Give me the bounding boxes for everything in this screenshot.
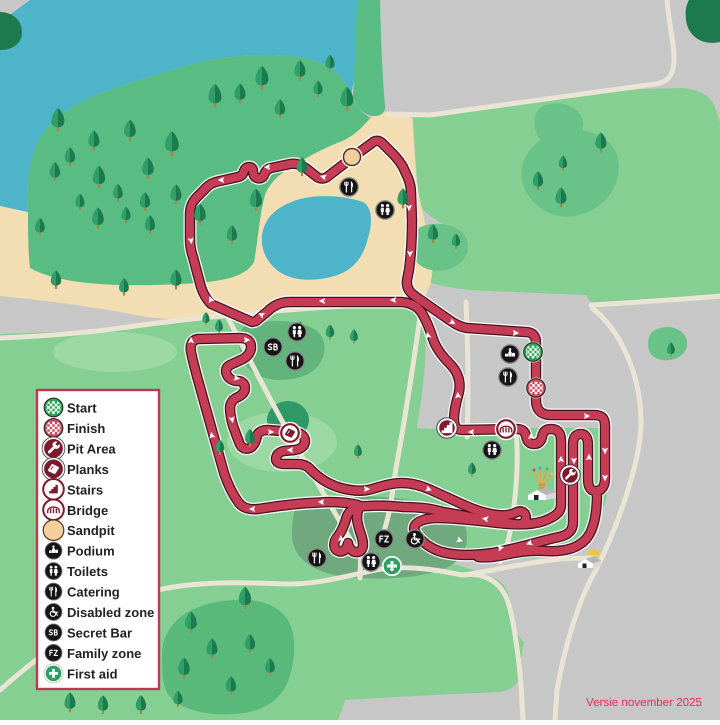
svg-text:Family zone: Family zone [67, 646, 141, 661]
svg-text:Planks: Planks [67, 462, 109, 477]
svg-text:Toilets: Toilets [67, 564, 108, 579]
svg-text:Finish: Finish [67, 421, 105, 436]
svg-text:Catering: Catering [67, 585, 120, 600]
svg-text:Secret Bar: Secret Bar [67, 626, 132, 641]
svg-text:First aid: First aid [67, 666, 118, 681]
svg-text:Start: Start [67, 401, 97, 416]
svg-text:Pit Area: Pit Area [67, 441, 116, 456]
svg-text:Disabled zone: Disabled zone [67, 605, 154, 620]
svg-text:Versie november 2025: Versie november 2025 [586, 696, 702, 709]
svg-text:Sandpit: Sandpit [67, 523, 115, 538]
svg-text:Stairs: Stairs [67, 482, 103, 497]
svg-text:Bridge: Bridge [67, 503, 108, 518]
svg-text:Podium: Podium [67, 544, 115, 559]
